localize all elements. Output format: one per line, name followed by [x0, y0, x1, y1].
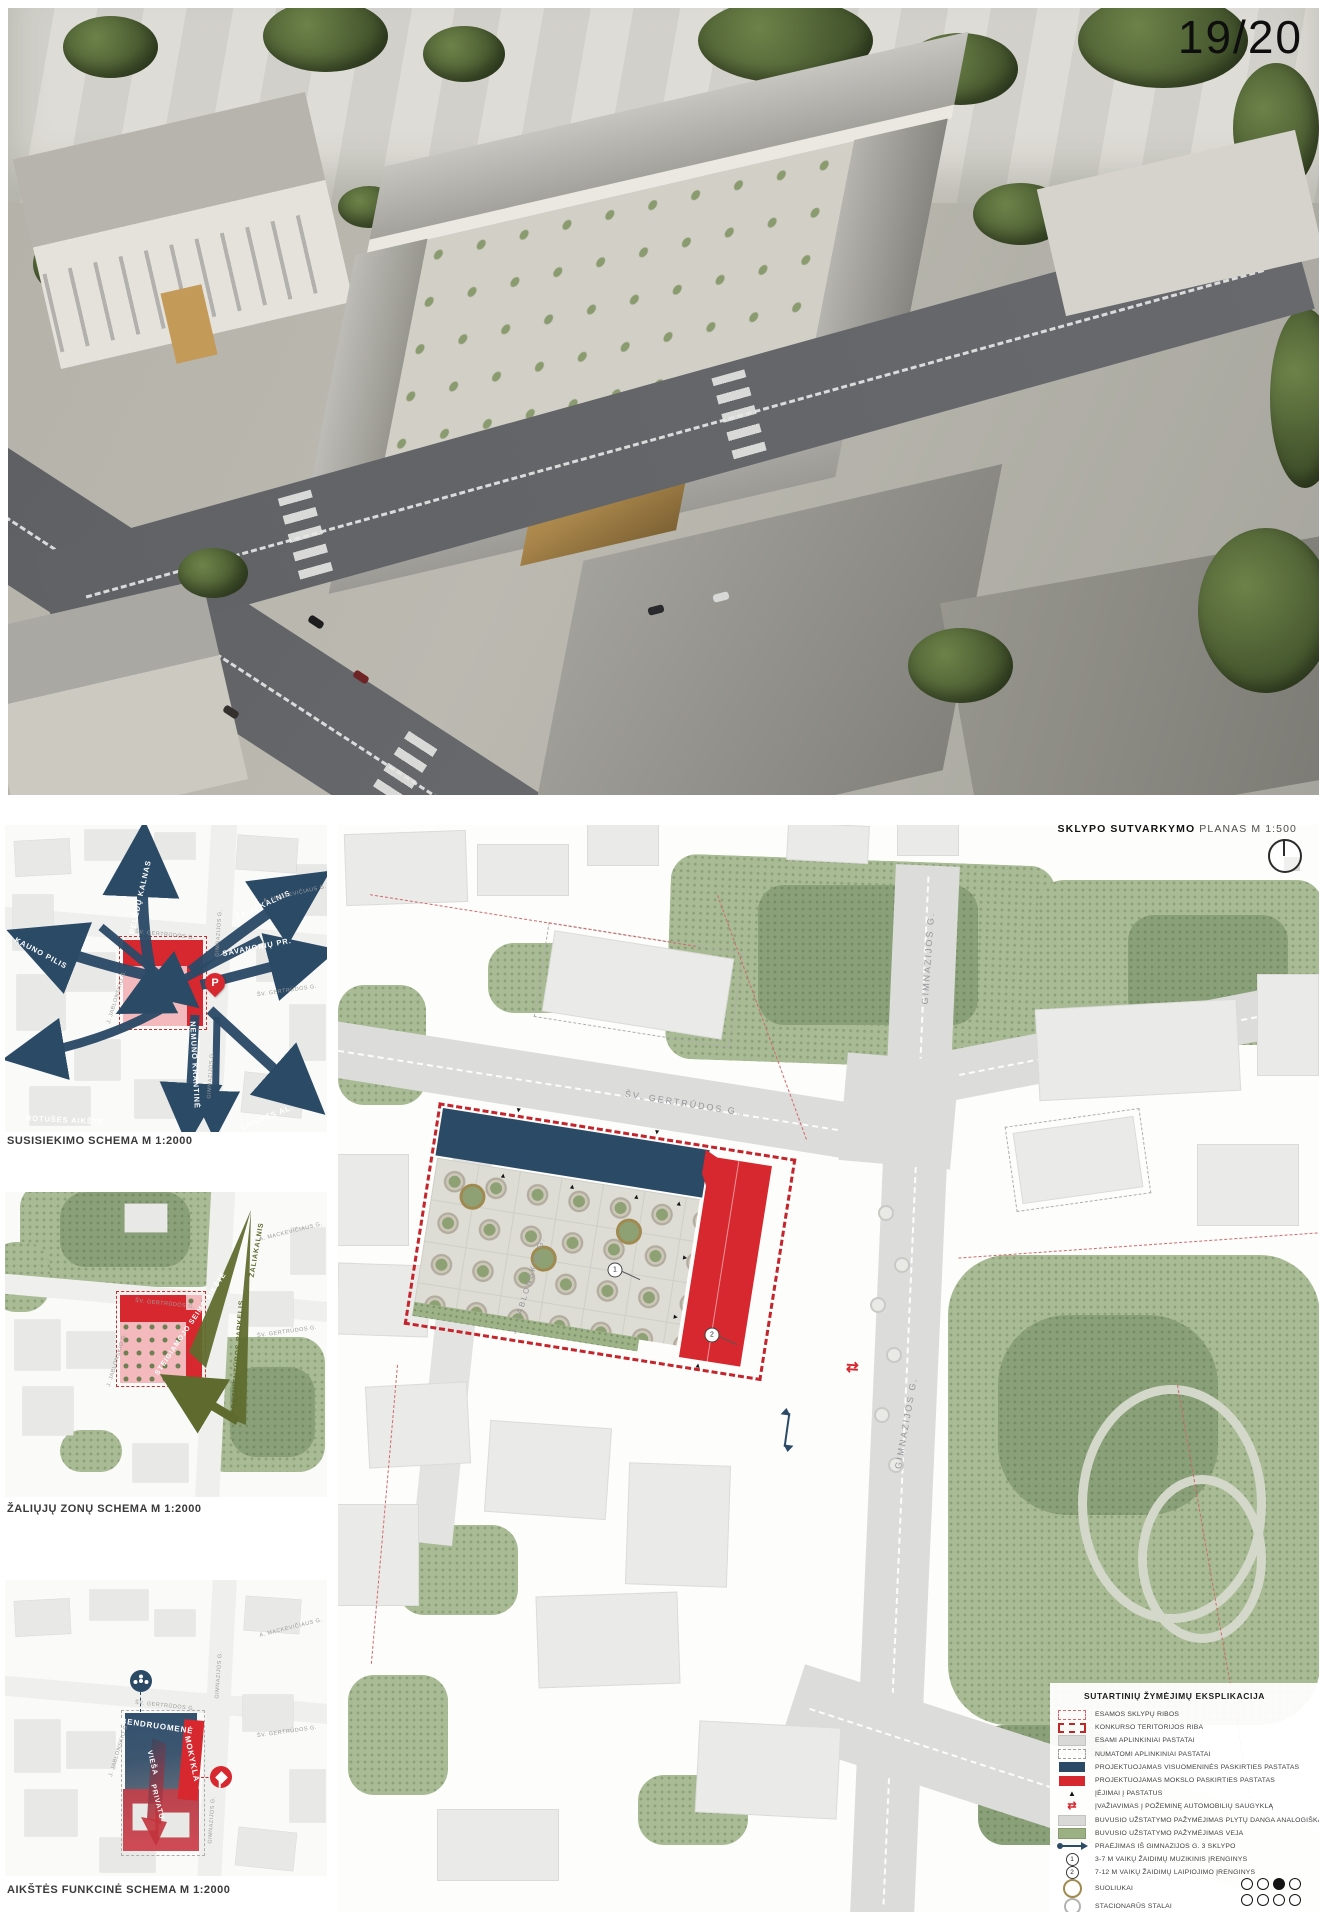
tree-canopy: [423, 26, 505, 82]
figure-functional-scheme: BENDRUOMENĖ MOKYKLA VIEŠA PRIVATU ŠV. GE…: [5, 1580, 327, 1876]
page-dot-7: [1273, 1894, 1285, 1906]
legend-row: ESAMOS SKLYPŲ RIBOS: [1058, 1708, 1314, 1721]
marker-number: 2: [1070, 1869, 1074, 1876]
legend-swatch-existing-buildings: [1058, 1735, 1086, 1746]
figure-caption: AIKŠTĖS FUNKCINĖ SCHEMA M 1:2000: [7, 1884, 230, 1896]
legend-label: PRAĖJIMAS IŠ GIMNAZIJOS G. 3 SKLYPO: [1095, 1843, 1236, 1850]
legend-swatch-former-footprint-paving: [1058, 1815, 1086, 1826]
building-footprint: [588, 825, 658, 865]
marker-number: 2: [710, 1332, 714, 1339]
plan-title-bold: SKLYPO SUTVARKYMO: [1058, 825, 1196, 835]
legend-row: ▲ĮĖJIMAI Į PASTATUS: [1058, 1787, 1314, 1800]
legend-row: ⇄ĮVAŽIAVIMAS Į POŽEMINĘ AUTOMOBILIŲ SAUG…: [1058, 1800, 1314, 1813]
aerial-render: 19/20: [8, 8, 1319, 795]
legend-swatch-public-building: [1059, 1762, 1085, 1772]
legend-label: PROJEKTUOJAMAS MOKSLO PASKIRTIES PASTATA…: [1095, 1777, 1275, 1784]
building-footprint: [345, 831, 467, 905]
legend-swatch-table-circle: [1064, 1898, 1081, 1912]
legend-row: 13-7 M VAIKŲ ŽAIDIMŲ MUZIKINIS ĮRENGINYS: [1058, 1853, 1314, 1866]
crosswalk: [711, 369, 766, 459]
figure-caption: ŽALIŲJŲ ZONŲ SCHEMA M 1:2000: [7, 1503, 202, 1515]
building-footprint: [1258, 975, 1318, 1075]
playground-marker-2: 2: [705, 1328, 720, 1343]
legend-row: NUMATOMI APLINKINIAI PASTATAI: [1058, 1748, 1314, 1761]
north-arrow-icon: [1268, 839, 1302, 873]
legend-row: BUVUSIO UŽSTATYMO PAŽYMĖJIMAS VEJA: [1058, 1827, 1314, 1840]
park-path: [1138, 1475, 1266, 1643]
legend-swatch-marker-2: 2: [1066, 1866, 1079, 1879]
tree-canopy: [908, 628, 1013, 703]
green-area: [348, 1675, 448, 1795]
legend-label: 3-7 M VAIKŲ ŽAIDIMŲ MUZIKINIS ĮRENGINYS: [1095, 1856, 1247, 1863]
legend-label: ESAMOS SKLYPŲ RIBOS: [1095, 1711, 1179, 1718]
graduation-cap-icon: [215, 1771, 228, 1784]
tree-canopy: [1270, 308, 1319, 488]
building-footprint: [1036, 1000, 1240, 1100]
planned-building-outline: [1005, 1108, 1152, 1212]
legend-swatch-existing-plot-lines: [1058, 1710, 1086, 1720]
building-footprint: [696, 1721, 841, 1818]
street-tree: [894, 1257, 910, 1273]
plan-title: SKLYPO SUTVARKYMO PLANAS M 1:500: [1058, 825, 1297, 835]
legend-swatch-bench-circle: [1063, 1879, 1082, 1898]
legend-row: BUVUSIO UŽSTATYMO PAŽYMĖJIMAS PLYTŲ DANG…: [1058, 1814, 1314, 1827]
legend-row: PROJEKTUOJAMAS VISUOMENINĖS PASKIRTIES P…: [1058, 1761, 1314, 1774]
pagination: [1241, 1878, 1311, 1906]
street-tree: [874, 1407, 890, 1423]
legend-label: PROJEKTUOJAMAS VISUOMENINĖS PASKIRTIES P…: [1095, 1764, 1299, 1771]
marker-number: 1: [1070, 1856, 1074, 1863]
page-dot-1: [1241, 1878, 1253, 1890]
parking-pin: P: [201, 969, 229, 997]
parking-pin-letter: P: [205, 973, 225, 993]
legend-swatch-garage-entry: ⇄: [1067, 1801, 1076, 1812]
intersection: [839, 1052, 960, 1169]
legend-label: NUMATOMI APLINKINIAI PASTATAI: [1095, 1751, 1211, 1758]
figure-caption: SUSISIEKIMO SCHEMA M 1:2000: [7, 1135, 192, 1147]
passage-arrow-head: [783, 1444, 794, 1452]
presentation-board: 19/20: [0, 0, 1327, 1920]
crosswalk: [363, 725, 442, 795]
legend-label: KONKURSO TERITORIJOS RIBA: [1095, 1724, 1203, 1731]
legend-row: PROJEKTUOJAMAS MOKSLO PASKIRTIES PASTATA…: [1058, 1774, 1314, 1787]
legend-label: ĮVAŽIAVIMAS Į POŽEMINĘ AUTOMOBILIŲ SAUGY…: [1095, 1803, 1273, 1810]
building-footprint: [366, 1382, 470, 1467]
site-plan: ▲ ▲ ▲ ▲ ▲ ▲ ▲ ▲ ▲ 1 2 ⇄ ŠV. GERTRŪDOS G.…: [338, 825, 1319, 1912]
building-footprint: [338, 1155, 408, 1245]
page-dot-4: [1289, 1878, 1301, 1890]
crosswalk: [278, 489, 333, 579]
legend-swatch-school-building: [1059, 1776, 1085, 1786]
legend-title: SUTARTINIŲ ŽYMĖJIMŲ EKSPLIKACIJA: [1084, 1691, 1314, 1701]
legend-swatch-passage-arrow: [1062, 1845, 1082, 1847]
passage-arrow: [784, 1413, 791, 1447]
legend-swatch-marker-1: 1: [1066, 1853, 1079, 1866]
street-tree: [886, 1347, 902, 1363]
legend-swatch-former-footprint-lawn: [1058, 1828, 1086, 1839]
building-footprint: [1198, 1145, 1298, 1225]
legend-label: SUOLIUKAI: [1095, 1885, 1133, 1892]
traffic-arrows: [5, 825, 327, 1132]
tree-canopy: [178, 548, 248, 598]
legend-row: KONKURSO TERITORIJOS RIBA: [1058, 1721, 1314, 1734]
legend-row: ESAMI APLINKINIAI PASTATAI: [1058, 1734, 1314, 1747]
building-footprint: [536, 1593, 679, 1688]
legend-label: BUVUSIO UŽSTATYMO PAŽYMĖJIMAS PLYTŲ DANG…: [1095, 1817, 1319, 1824]
playground-marker-1: 1: [608, 1263, 623, 1278]
legend-swatch-entrance-triangle: ▲: [1068, 1790, 1076, 1798]
page-dot-8: [1289, 1894, 1301, 1906]
parcel-line: [370, 894, 696, 947]
garage-entry-arrows: ⇄: [846, 1363, 859, 1373]
figure-green-zones-scheme: ŽALIAKALNIS PREZIDENTŪROS PARKELIS STEIG…: [5, 1192, 327, 1497]
legend-swatch-planned-buildings: [1058, 1749, 1086, 1759]
page-dot-3-active: [1273, 1878, 1285, 1890]
page-dot-5: [1241, 1894, 1253, 1906]
street-tree: [878, 1205, 894, 1221]
legend-label: ESAMI APLINKINIAI PASTATAI: [1095, 1737, 1195, 1744]
marker-number: 1: [613, 1267, 617, 1274]
community-icon: [130, 1670, 152, 1692]
people-icon: [139, 1679, 143, 1683]
building-footprint: [438, 1810, 558, 1880]
legend-label: STACIONARŪS STALAI: [1095, 1903, 1172, 1910]
building-footprint: [787, 825, 869, 863]
building-footprint: [898, 825, 958, 855]
legend-row: PRAĖJIMAS IŠ GIMNAZIJOS G. 3 SKLYPO: [1058, 1840, 1314, 1853]
page-number: 19/20: [1178, 10, 1303, 64]
legend-label: 7-12 M VAIKŲ ŽAIDIMŲ LAIPIOJIMO ĮRENGINY…: [1095, 1869, 1255, 1876]
building-footprint: [478, 845, 568, 895]
school-icon: [210, 1766, 232, 1788]
street-tree: [870, 1297, 886, 1313]
car: [307, 614, 325, 629]
page-dot-2: [1257, 1878, 1269, 1890]
figure-transport-scheme: KAUNO PILIS PELĖDŲ KALNAS ŽALIAKALNIS SA…: [5, 825, 327, 1132]
page-dot-6: [1257, 1894, 1269, 1906]
passage-arrow-head: [781, 1407, 792, 1415]
building-footprint: [626, 1463, 730, 1586]
building-footprint: [485, 1421, 611, 1519]
legend-swatch-competition-boundary: [1058, 1723, 1086, 1733]
legend-label: BUVUSIO UŽSTATYMO PAŽYMĖJIMAS VEJA: [1095, 1830, 1243, 1837]
plan-title-regular: PLANAS M 1:500: [1199, 825, 1297, 835]
legend-label: ĮĖJIMAI Į PASTATUS: [1095, 1790, 1162, 1797]
tree-canopy: [63, 16, 158, 78]
